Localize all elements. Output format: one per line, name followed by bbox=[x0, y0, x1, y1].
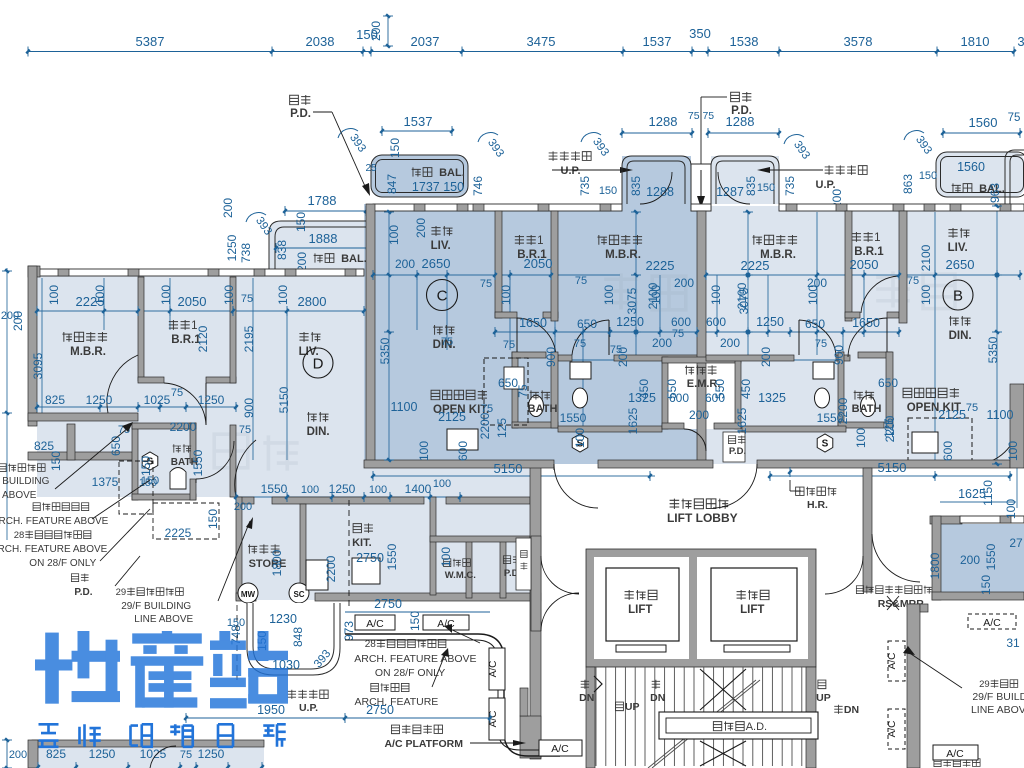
svg-text:200: 200 bbox=[720, 336, 740, 350]
svg-text:1400: 1400 bbox=[405, 482, 432, 496]
svg-text:150: 150 bbox=[757, 182, 775, 194]
svg-text:A.D.: A.D. bbox=[746, 721, 767, 733]
svg-text:2650: 2650 bbox=[946, 257, 975, 272]
svg-text:DN: DN bbox=[579, 692, 594, 704]
svg-text:MW: MW bbox=[241, 590, 256, 599]
svg-text:200: 200 bbox=[960, 553, 980, 567]
svg-text:BAL.: BAL. bbox=[439, 167, 465, 179]
svg-text:1560: 1560 bbox=[969, 115, 998, 130]
svg-text:75: 75 bbox=[503, 339, 515, 351]
svg-text:200: 200 bbox=[234, 501, 252, 513]
svg-text:847: 847 bbox=[385, 174, 399, 194]
svg-text:A/C: A/C bbox=[946, 748, 964, 760]
svg-text:75: 75 bbox=[672, 328, 684, 340]
svg-text:2100: 2100 bbox=[919, 244, 933, 271]
svg-text:200: 200 bbox=[369, 21, 383, 41]
svg-text:1550: 1550 bbox=[560, 411, 587, 425]
svg-text:100: 100 bbox=[387, 225, 401, 245]
svg-text:P.D.: P.D. bbox=[731, 105, 752, 117]
svg-text:746: 746 bbox=[471, 176, 485, 196]
svg-text:1550: 1550 bbox=[385, 543, 399, 570]
svg-text:LIV.: LIV. bbox=[948, 242, 968, 254]
svg-text:75: 75 bbox=[180, 749, 192, 761]
svg-text:650: 650 bbox=[109, 436, 123, 456]
svg-text:3075: 3075 bbox=[625, 287, 639, 314]
svg-text:1788: 1788 bbox=[308, 193, 337, 208]
svg-text:1250: 1250 bbox=[86, 393, 113, 407]
svg-text:1250: 1250 bbox=[89, 747, 116, 761]
svg-text:2225: 2225 bbox=[741, 258, 770, 273]
svg-text:2195: 2195 bbox=[242, 325, 256, 352]
svg-text:2050: 2050 bbox=[524, 256, 553, 271]
svg-text:2200: 2200 bbox=[883, 415, 897, 442]
svg-text:75: 75 bbox=[441, 336, 453, 348]
svg-text:200: 200 bbox=[759, 347, 773, 367]
svg-text:1250: 1250 bbox=[756, 315, 784, 329]
svg-text:100: 100 bbox=[47, 285, 61, 305]
svg-text:735: 735 bbox=[783, 176, 797, 196]
svg-text:RCH. FEATURE ABOVE: RCH. FEATURE ABOVE bbox=[0, 516, 109, 527]
svg-text:LIFT: LIFT bbox=[628, 604, 652, 616]
svg-text:100: 100 bbox=[602, 285, 616, 305]
svg-text:LIFT: LIFT bbox=[740, 604, 764, 616]
svg-text:F BUILDING: F BUILDING bbox=[0, 476, 50, 487]
svg-text:1550: 1550 bbox=[984, 543, 998, 570]
svg-text:2225: 2225 bbox=[646, 258, 675, 273]
svg-text:650: 650 bbox=[878, 376, 898, 390]
svg-text:27: 27 bbox=[1009, 536, 1023, 550]
svg-text:W.M.C.: W.M.C. bbox=[445, 570, 476, 581]
svg-text:1230: 1230 bbox=[269, 612, 297, 626]
svg-text:650: 650 bbox=[498, 376, 518, 390]
svg-text:1625: 1625 bbox=[735, 407, 749, 434]
svg-text:5150: 5150 bbox=[277, 386, 291, 413]
svg-text:825: 825 bbox=[34, 439, 54, 453]
svg-text:1: 1 bbox=[874, 232, 880, 244]
svg-text:M.B.R.: M.B.R. bbox=[70, 346, 106, 358]
svg-text:2800: 2800 bbox=[298, 294, 327, 309]
svg-text:5150: 5150 bbox=[494, 461, 523, 476]
svg-text:650: 650 bbox=[577, 317, 597, 331]
svg-text:848: 848 bbox=[291, 627, 305, 647]
svg-text:150: 150 bbox=[388, 138, 402, 158]
svg-text:BAL.: BAL. bbox=[341, 253, 367, 265]
svg-text:2050: 2050 bbox=[850, 257, 879, 272]
svg-text:100: 100 bbox=[573, 428, 587, 448]
svg-text:1250: 1250 bbox=[225, 234, 239, 261]
svg-text:75: 75 bbox=[239, 424, 251, 436]
svg-text:1800: 1800 bbox=[270, 549, 284, 576]
svg-text:550: 550 bbox=[665, 379, 679, 399]
svg-text:2125: 2125 bbox=[438, 410, 466, 424]
svg-text:28: 28 bbox=[14, 530, 25, 541]
svg-text:25: 25 bbox=[365, 163, 377, 174]
svg-text:DN: DN bbox=[844, 704, 859, 716]
svg-text:150: 150 bbox=[979, 575, 993, 595]
svg-text:2120: 2120 bbox=[196, 325, 210, 352]
svg-text:A/C: A/C bbox=[887, 653, 898, 670]
svg-text:1550: 1550 bbox=[261, 482, 288, 496]
svg-text:DIN.: DIN. bbox=[949, 330, 972, 342]
svg-text:1250: 1250 bbox=[616, 315, 644, 329]
svg-text:1737 150: 1737 150 bbox=[412, 180, 464, 194]
svg-text:UP: UP bbox=[816, 692, 831, 704]
svg-text:LIV.: LIV. bbox=[431, 240, 451, 252]
svg-text:ABOVE: ABOVE bbox=[2, 490, 37, 501]
svg-text:150: 150 bbox=[599, 185, 617, 197]
svg-text:450: 450 bbox=[739, 379, 753, 399]
svg-text:2225: 2225 bbox=[165, 526, 192, 540]
svg-text:D: D bbox=[313, 355, 324, 372]
svg-text:200: 200 bbox=[395, 257, 415, 271]
svg-text:2200: 2200 bbox=[324, 555, 338, 582]
svg-text:100: 100 bbox=[806, 285, 820, 305]
svg-text:28: 28 bbox=[365, 639, 377, 650]
svg-text:75: 75 bbox=[1008, 112, 1021, 124]
svg-text:100: 100 bbox=[369, 484, 387, 496]
svg-text:2037: 2037 bbox=[411, 34, 440, 49]
svg-text:C: C bbox=[437, 287, 448, 304]
svg-text:5350: 5350 bbox=[378, 337, 392, 364]
svg-text:100: 100 bbox=[417, 441, 431, 461]
svg-text:B: B bbox=[953, 287, 963, 304]
svg-text:2750: 2750 bbox=[356, 551, 384, 565]
svg-text:1537: 1537 bbox=[404, 114, 433, 129]
svg-text:738: 738 bbox=[239, 243, 253, 263]
svg-text:150: 150 bbox=[408, 611, 422, 631]
svg-text:A/C: A/C bbox=[366, 618, 384, 630]
svg-text:1100: 1100 bbox=[987, 408, 1014, 422]
svg-text:150: 150 bbox=[139, 477, 157, 489]
svg-text:3578: 3578 bbox=[844, 34, 873, 49]
svg-text:2200: 2200 bbox=[836, 397, 850, 424]
svg-text:2100: 2100 bbox=[735, 282, 749, 309]
svg-text:A/C: A/C bbox=[887, 721, 898, 738]
svg-text:RCH. FEATURE ABOVE: RCH. FEATURE ABOVE bbox=[0, 544, 108, 555]
svg-text:100: 100 bbox=[919, 285, 933, 305]
svg-text:100: 100 bbox=[499, 285, 513, 305]
svg-text:2650: 2650 bbox=[422, 256, 451, 271]
svg-text:1250: 1250 bbox=[329, 482, 356, 496]
svg-text:1288: 1288 bbox=[649, 114, 678, 129]
svg-text:900: 900 bbox=[242, 398, 256, 418]
svg-text:150: 150 bbox=[227, 617, 245, 629]
svg-text:1375: 1375 bbox=[92, 475, 119, 489]
svg-text:75: 75 bbox=[574, 338, 586, 350]
svg-text:29/F BUILD: 29/F BUILD bbox=[972, 691, 1024, 703]
svg-text:UP: UP bbox=[625, 701, 640, 713]
svg-text:450: 450 bbox=[637, 379, 651, 399]
svg-text:100: 100 bbox=[93, 285, 107, 305]
svg-text:1537: 1537 bbox=[643, 34, 672, 49]
svg-text:200: 200 bbox=[674, 276, 694, 290]
svg-text:735: 735 bbox=[578, 176, 592, 196]
svg-text:75: 75 bbox=[241, 293, 253, 305]
svg-text:835: 835 bbox=[744, 176, 758, 196]
svg-text:3475: 3475 bbox=[527, 34, 556, 49]
svg-text:1538: 1538 bbox=[730, 34, 759, 49]
svg-text:S: S bbox=[822, 439, 829, 450]
svg-text:200: 200 bbox=[652, 336, 672, 350]
svg-text:350: 350 bbox=[689, 26, 711, 41]
svg-text:1810: 1810 bbox=[961, 34, 990, 49]
svg-text:75: 75 bbox=[480, 278, 492, 290]
svg-text:A/C: A/C bbox=[983, 617, 1001, 629]
svg-text:150: 150 bbox=[206, 509, 220, 529]
svg-text:P.D.: P.D. bbox=[290, 108, 311, 120]
svg-text:ARCH. FEATURE: ARCH. FEATURE bbox=[355, 696, 439, 708]
svg-text:100: 100 bbox=[1006, 441, 1020, 461]
svg-text:150: 150 bbox=[919, 170, 937, 182]
svg-text:200: 200 bbox=[414, 218, 428, 238]
svg-text:550: 550 bbox=[713, 379, 727, 399]
svg-text:963: 963 bbox=[988, 183, 1002, 203]
svg-text:1550: 1550 bbox=[191, 449, 205, 476]
svg-text:75: 75 bbox=[610, 344, 622, 356]
svg-text:ARCH. FEATURE ABOVE: ARCH. FEATURE ABOVE bbox=[354, 653, 476, 665]
svg-text:DN: DN bbox=[650, 692, 665, 704]
svg-text:29: 29 bbox=[116, 587, 127, 598]
svg-text:100: 100 bbox=[709, 285, 723, 305]
svg-text:1650: 1650 bbox=[519, 316, 547, 330]
svg-text:150: 150 bbox=[139, 456, 153, 476]
svg-text:M.B.R.: M.B.R. bbox=[605, 249, 641, 261]
svg-text:835: 835 bbox=[629, 176, 643, 196]
svg-text:75: 75 bbox=[815, 338, 827, 350]
svg-text:LINE ABOVE: LINE ABOVE bbox=[134, 614, 193, 625]
svg-text:75: 75 bbox=[575, 275, 587, 287]
svg-text:200: 200 bbox=[689, 408, 709, 422]
svg-text:1650: 1650 bbox=[852, 316, 880, 330]
svg-text:29/F BUILDING: 29/F BUILDING bbox=[121, 601, 191, 612]
svg-text:31: 31 bbox=[1006, 636, 1020, 650]
svg-text:650: 650 bbox=[805, 317, 825, 331]
svg-text:75: 75 bbox=[516, 384, 530, 398]
svg-text:1250: 1250 bbox=[198, 393, 225, 407]
svg-text:100: 100 bbox=[433, 478, 451, 490]
svg-text:200: 200 bbox=[11, 311, 25, 331]
svg-text:200: 200 bbox=[9, 749, 27, 761]
svg-text:200: 200 bbox=[221, 198, 235, 218]
svg-text:600: 600 bbox=[706, 315, 726, 329]
svg-text:2125: 2125 bbox=[938, 408, 966, 422]
svg-text:U.P.: U.P. bbox=[561, 165, 581, 177]
svg-text:900: 900 bbox=[544, 347, 558, 367]
svg-text:1625: 1625 bbox=[626, 407, 640, 434]
svg-text:5350: 5350 bbox=[986, 336, 1000, 363]
svg-text:U.P.: U.P. bbox=[299, 702, 318, 714]
svg-text:DIN.: DIN. bbox=[307, 426, 330, 438]
svg-text:1100: 1100 bbox=[391, 400, 418, 414]
svg-text:825: 825 bbox=[46, 747, 66, 761]
svg-text:838: 838 bbox=[275, 240, 289, 260]
svg-text:BATH: BATH bbox=[852, 403, 882, 415]
svg-text:825: 825 bbox=[45, 393, 65, 407]
svg-text:1888: 1888 bbox=[309, 231, 338, 246]
svg-text:2200: 2200 bbox=[478, 412, 492, 439]
svg-text:3: 3 bbox=[1017, 34, 1024, 49]
svg-text:1800: 1800 bbox=[928, 552, 942, 579]
svg-text:100: 100 bbox=[276, 285, 290, 305]
svg-text:75: 75 bbox=[907, 275, 919, 287]
svg-text:1: 1 bbox=[537, 235, 543, 247]
svg-text:75: 75 bbox=[966, 402, 978, 414]
svg-text:600: 600 bbox=[671, 315, 691, 329]
svg-text:A/C: A/C bbox=[551, 743, 569, 755]
svg-text:5387: 5387 bbox=[136, 34, 165, 49]
svg-text:100: 100 bbox=[222, 285, 236, 305]
svg-text:ON 28/F ONLY: ON 28/F ONLY bbox=[29, 558, 96, 569]
svg-text:LINE ABOVE: LINE ABOVE bbox=[971, 704, 1024, 716]
svg-text:900: 900 bbox=[832, 345, 846, 365]
svg-text:600: 600 bbox=[941, 441, 955, 461]
svg-text:1250: 1250 bbox=[198, 747, 225, 761]
svg-text:P.D.: P.D. bbox=[74, 587, 92, 598]
svg-text:2750: 2750 bbox=[374, 597, 402, 611]
svg-text:2038: 2038 bbox=[306, 34, 335, 49]
svg-text:P.D.: P.D. bbox=[729, 446, 746, 457]
svg-text:100: 100 bbox=[159, 285, 173, 305]
svg-text:29: 29 bbox=[979, 679, 990, 690]
svg-text:3095: 3095 bbox=[31, 352, 45, 379]
svg-text:600: 600 bbox=[456, 441, 470, 461]
svg-text:100: 100 bbox=[1004, 499, 1018, 519]
svg-text:A/C PLATFORM: A/C PLATFORM bbox=[384, 738, 463, 750]
svg-text:150: 150 bbox=[294, 212, 308, 232]
svg-text:KIT.: KIT. bbox=[352, 537, 372, 549]
svg-text:100: 100 bbox=[439, 547, 453, 567]
svg-text:100: 100 bbox=[854, 428, 868, 448]
svg-text:BATH: BATH bbox=[528, 403, 558, 415]
svg-text:973: 973 bbox=[342, 621, 356, 641]
svg-text:125: 125 bbox=[495, 418, 509, 438]
svg-text:1325: 1325 bbox=[758, 391, 786, 405]
svg-text:1025: 1025 bbox=[144, 393, 171, 407]
svg-text:150: 150 bbox=[49, 451, 63, 471]
svg-text:100: 100 bbox=[301, 484, 319, 496]
svg-text:ON 28/F ONLY: ON 28/F ONLY bbox=[375, 667, 445, 679]
svg-text:A/C: A/C bbox=[488, 661, 499, 678]
svg-text:H.R.: H.R. bbox=[807, 499, 828, 511]
svg-text:LIFT LOBBY: LIFT LOBBY bbox=[667, 511, 738, 525]
svg-text:A/C: A/C bbox=[437, 618, 455, 630]
svg-text:75: 75 bbox=[171, 387, 183, 399]
svg-text:863: 863 bbox=[901, 174, 915, 194]
svg-text:1950: 1950 bbox=[257, 703, 285, 717]
svg-text:SC: SC bbox=[293, 590, 304, 599]
svg-text:1150: 1150 bbox=[981, 480, 995, 506]
svg-text:2050: 2050 bbox=[178, 294, 207, 309]
svg-text:100: 100 bbox=[649, 285, 663, 305]
svg-text:1560: 1560 bbox=[957, 160, 985, 174]
svg-text:5150: 5150 bbox=[878, 460, 907, 475]
svg-text:2200: 2200 bbox=[170, 420, 197, 434]
